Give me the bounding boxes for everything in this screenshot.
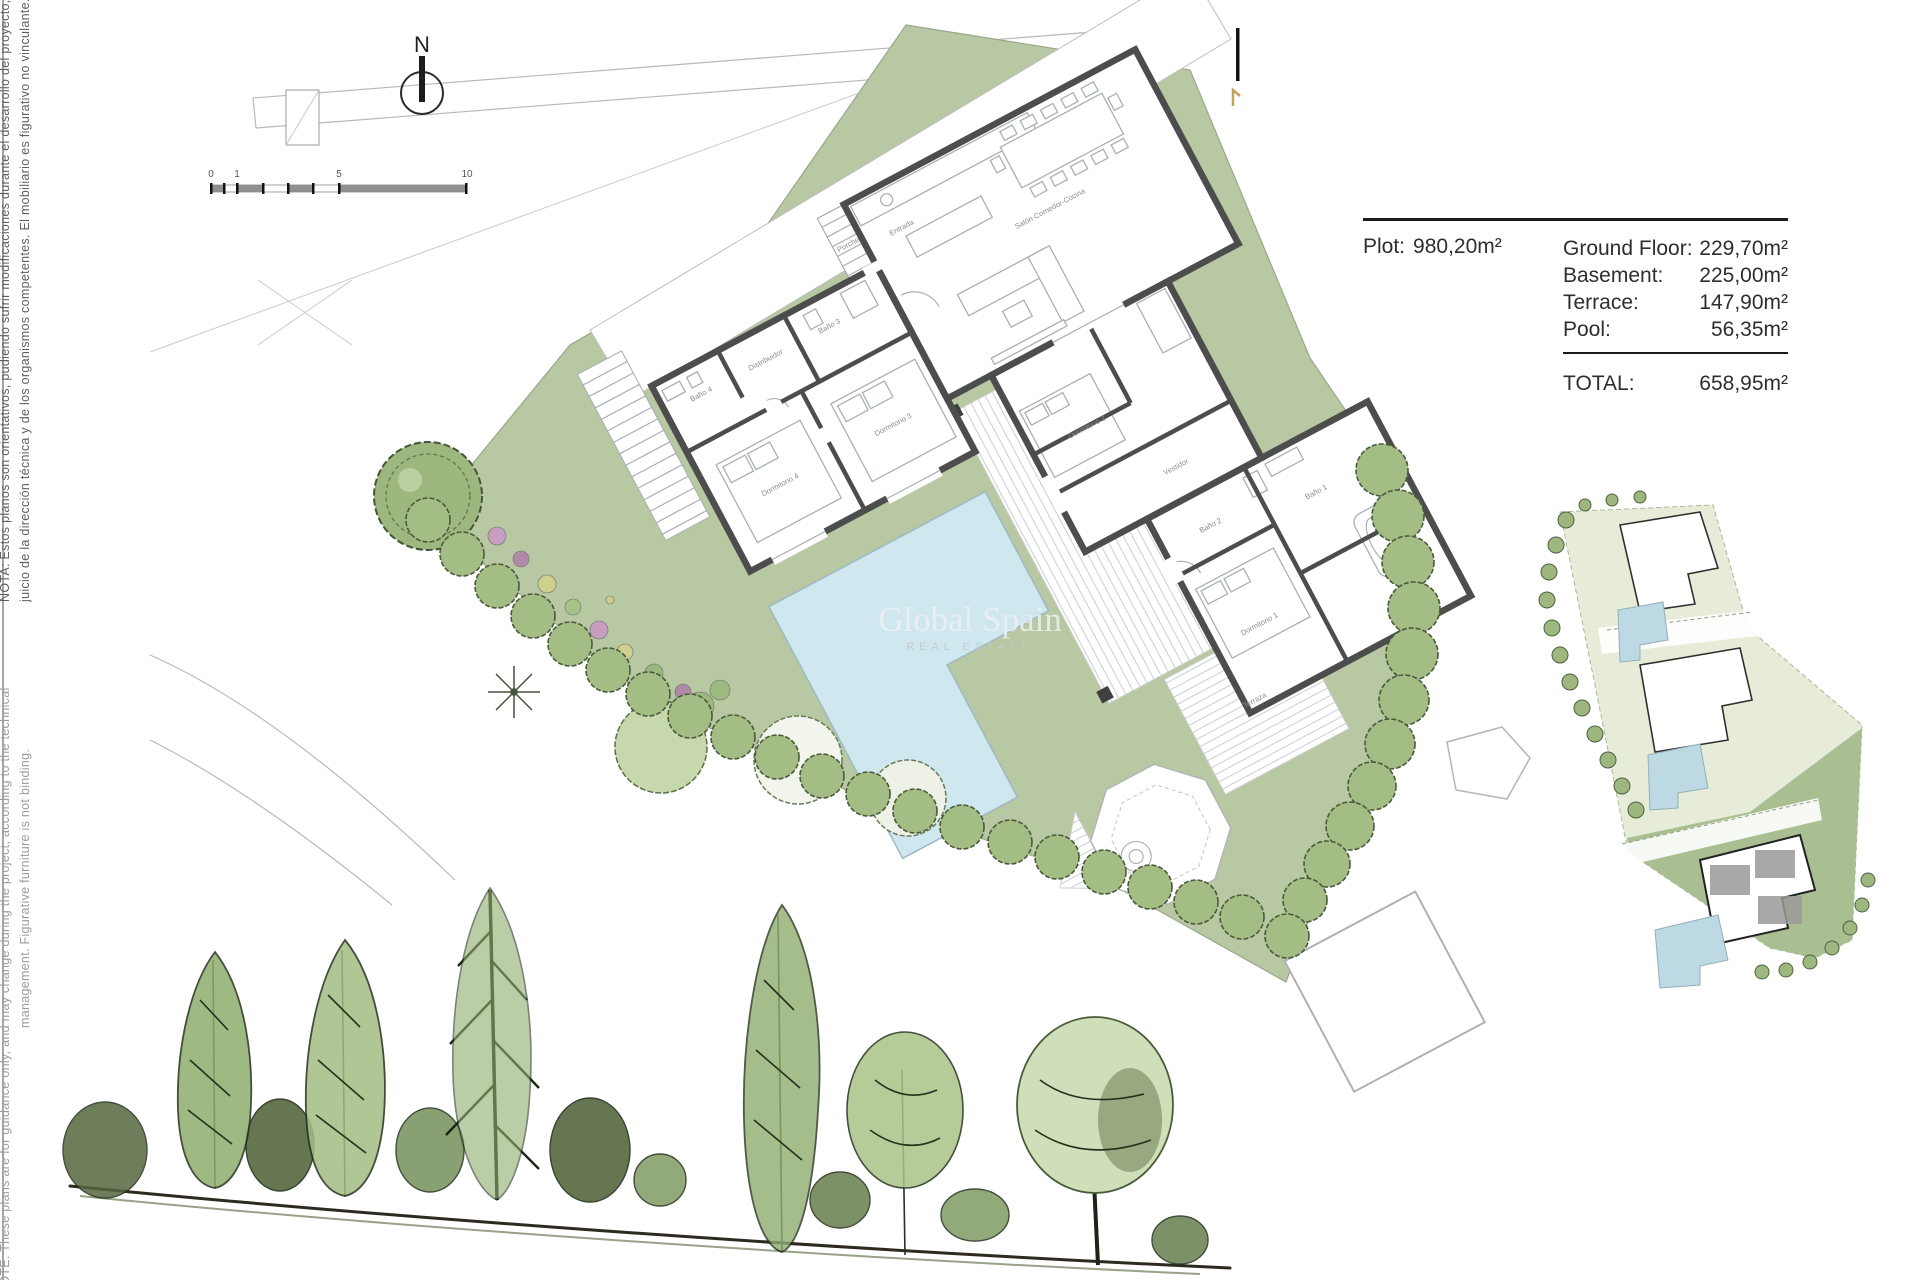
scale-label: 5 (336, 169, 342, 180)
area-summary-table: Plot:980,20m² Ground Floor: 229,70m² Bas… (1363, 218, 1788, 397)
row-label: Terrace: (1563, 289, 1639, 316)
note-spanish-line2: juicio de la dirección técnica y de los … (18, 0, 33, 602)
plot-label: Plot: (1363, 235, 1405, 258)
plan-sheet: Porche Entrada Distribuidor Baño 4 Baño … (0, 0, 1920, 1280)
reference-tick (1233, 28, 1240, 106)
site-plan-drawing: Porche Entrada Distribuidor Baño 4 Baño … (0, 0, 1920, 1280)
total-value: 658,95m² (1699, 370, 1788, 397)
plot-area-row: Plot:980,20m² (1363, 235, 1563, 397)
service-pad (1285, 892, 1485, 1092)
north-arrow: N (401, 32, 443, 114)
north-label: N (414, 32, 430, 57)
note-english-line2: management. Figurative furniture is not … (18, 749, 33, 1028)
plot-value: 980,20m² (1413, 235, 1502, 258)
sketch-tree (1017, 1017, 1173, 1265)
row-value: 225,00m² (1699, 262, 1788, 289)
road-curves-left (150, 655, 455, 905)
note-spanish-line1: NOTA: Estos planos son orientativos, pud… (0, 0, 13, 602)
table-row: Ground Floor: 229,70m² (1563, 235, 1788, 262)
table-total-rule (1563, 352, 1788, 354)
row-value: 56,35m² (1711, 316, 1788, 343)
scale-label: 10 (461, 169, 473, 180)
row-value: 147,90m² (1699, 289, 1788, 316)
sketch-tree (178, 952, 251, 1188)
scale-bar: 0 1 5 10 (208, 169, 473, 194)
note-english-line1: NOTE: These plans are for guidance only,… (0, 687, 13, 1280)
table-top-rule (1363, 218, 1788, 221)
tree-elevation-sketch (63, 888, 1230, 1274)
table-row: Terrace: 147,90m² (1563, 289, 1788, 316)
total-row: TOTAL: 658,95m² (1563, 370, 1788, 397)
scale-label: 0 (208, 169, 214, 180)
neighbour-plot-marker (1447, 727, 1530, 799)
row-label: Basement: (1563, 262, 1663, 289)
site-plan-inset (1447, 491, 1875, 988)
row-value: 229,70m² (1699, 235, 1788, 262)
total-label: TOTAL: (1563, 370, 1635, 397)
table-row: Pool: 56,35m² (1563, 316, 1788, 343)
sketch-tree (744, 905, 820, 1252)
scale-label: 1 (234, 169, 240, 180)
table-row: Basement: 225,00m² (1563, 262, 1788, 289)
sketch-tree (306, 940, 385, 1196)
palm-icon (488, 666, 540, 718)
row-label: Pool: (1563, 316, 1611, 343)
row-label: Ground Floor: (1563, 235, 1693, 262)
